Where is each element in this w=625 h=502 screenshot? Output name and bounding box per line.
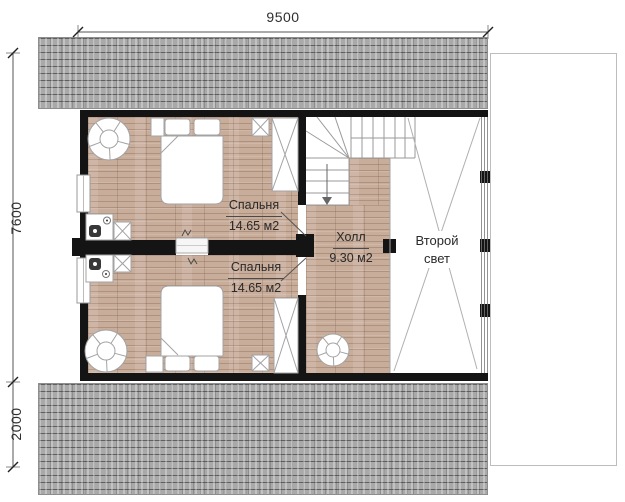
papasan-chair-hall (317, 334, 349, 366)
bed-top (151, 118, 223, 204)
vanity-top (86, 214, 113, 240)
vanity-stool-bottom (114, 255, 131, 272)
pillow (194, 119, 220, 135)
nightstand (151, 118, 164, 136)
bed-bottom (146, 286, 223, 372)
plan-linework (0, 0, 625, 502)
pillow (165, 119, 190, 135)
pillow (194, 356, 219, 371)
room-area: 14.65 м2 (222, 217, 286, 236)
second-light-label: Второй свет (404, 231, 470, 268)
floor-plan-canvas: Спальня 14.65 м2 Спальня 14.65 м2 Холл 9… (0, 0, 625, 502)
bedroom-bottom-label: Спальня 14.65 м2 (224, 258, 288, 298)
bed-body (161, 286, 223, 356)
bedroom-top-label: Спальня 14.65 м2 (222, 196, 286, 236)
nightstand (146, 356, 163, 372)
room-name: Второй свет (413, 231, 462, 268)
staircase (306, 117, 415, 205)
vanity-bottom (86, 255, 113, 282)
pillow (165, 356, 190, 371)
stool-bottom-right (252, 355, 269, 371)
bed-body (161, 136, 223, 204)
room-name: Спальня (226, 196, 282, 217)
dimension-left-lower: 2000 (8, 407, 24, 440)
room-name: Спальня (228, 258, 284, 279)
room-area: 14.65 м2 (224, 279, 288, 298)
wardrobe-bottom (274, 298, 298, 373)
hall-label: Холл 9.30 м2 (324, 228, 378, 268)
stool-top-right (252, 118, 269, 136)
room-name: Холл (333, 228, 368, 249)
vanity-stool-top (114, 222, 131, 240)
room-area: 9.30 м2 (324, 249, 378, 268)
papasan-chair-bottom (85, 330, 127, 372)
wardrobe-top (272, 118, 298, 191)
dimension-left-main: 7600 (8, 201, 24, 234)
papasan-chair-top (88, 118, 130, 160)
dimension-top-width: 9500 (266, 9, 299, 25)
